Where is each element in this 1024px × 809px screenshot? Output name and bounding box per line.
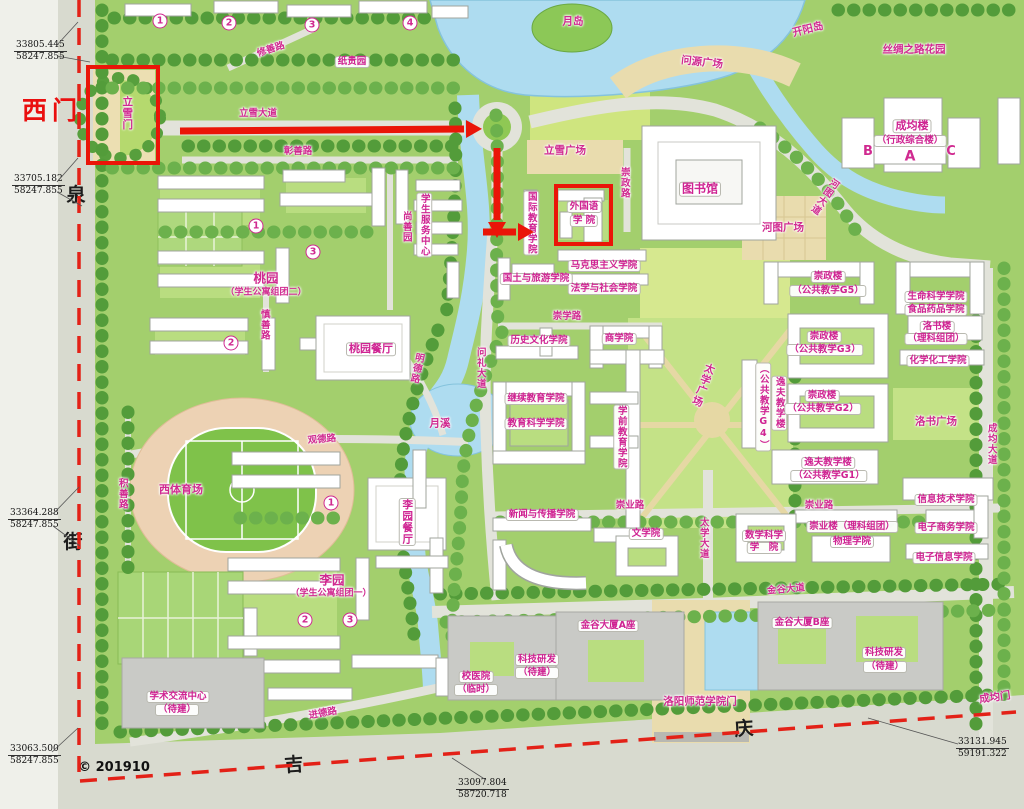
map-label: 学前教育学院 [613, 405, 629, 470]
map-label: 月溪 [430, 418, 451, 429]
map-label: 校医院 [459, 671, 494, 683]
map-label: 成均大道 [986, 423, 996, 465]
map-label: 国土与旅游学院 [500, 273, 573, 285]
map-label: 河图广场 [762, 222, 804, 233]
map-label: 金谷大厦B座 [772, 617, 833, 629]
map-label: 外国语 [567, 201, 602, 213]
map-label: 成均楼 [893, 119, 932, 133]
map-label: 明德路 [408, 352, 424, 385]
map-label: 问源广场 [681, 55, 724, 70]
building-number-badge: 1 [324, 496, 339, 511]
map-label: 尚善园 [401, 211, 411, 243]
map-label: 学 院 [570, 215, 598, 227]
survey-coordinate: 33063.50058247.855 [8, 744, 61, 767]
map-label: 街 [63, 533, 82, 553]
map-label: 西体育场 [159, 484, 203, 496]
map-label: 李园餐厅 [399, 498, 416, 546]
coordinate-y: 58247.855 [8, 756, 61, 767]
map-label: 修善路 [256, 41, 286, 59]
map-label: 学生服务中心 [416, 193, 432, 258]
map-label: 历史文化学院 [507, 335, 570, 347]
map-label: 商学院 [602, 333, 637, 345]
map-label: 太学广场 [690, 362, 716, 409]
lixue-gate-label: 立雪门 [122, 96, 133, 131]
map-label: 学术交流中心 [146, 691, 209, 703]
map-label: 电子信息学院 [912, 552, 975, 564]
map-label: （理科组团） [904, 333, 967, 345]
survey-coordinate: 33131.94559191.322 [956, 737, 1009, 760]
map-label: （待建） [863, 661, 907, 673]
map-label: 数学科学 [742, 530, 786, 542]
building-number-badge: 3 [305, 18, 320, 33]
map-label: 逸夫教学楼 [801, 457, 855, 469]
building-number-badge: 1 [153, 14, 168, 29]
coordinate-x: 33063.500 [8, 744, 61, 756]
coordinate-x: 33097.804 [456, 778, 509, 790]
coordinate-y: 58247.855 [14, 52, 67, 63]
west-gate-label: 西门 [22, 98, 82, 124]
map-label: 生命科学学院 [904, 291, 967, 303]
map-label: 彰善路 [284, 147, 313, 157]
coordinate-x: 33131.945 [956, 737, 1009, 749]
building-number-badge: 1 [249, 219, 264, 234]
coordinate-y: 59191.322 [956, 749, 1009, 760]
map-label: （公共教学G5） [789, 285, 866, 297]
chengjun-gate-label: 成均门 [979, 690, 1012, 705]
map-label: 立雪大道 [239, 109, 277, 119]
map-label: 立雪广场 [544, 145, 586, 156]
map-label: 积善路 [117, 478, 127, 510]
map-label: 电子商务学院 [914, 522, 977, 534]
map-label: （公共教学G1） [790, 470, 867, 482]
coordinate-x: 33805.445 [14, 40, 67, 52]
map-label: 开阳岛 [791, 21, 824, 39]
map-label: 庆 [734, 719, 754, 740]
map-label: 河图大道 [808, 176, 840, 216]
map-label: 月岛 [563, 16, 584, 27]
map-label: 丝绸之路花园 [883, 44, 946, 55]
map-label: 崇业路 [616, 501, 645, 511]
map-label: （待建） [515, 667, 559, 679]
map-label: 科技研发 [862, 647, 906, 659]
coordinate-y: 58720.718 [456, 790, 509, 801]
map-label: 国际教育学院 [523, 191, 539, 256]
building-number-badge: 3 [343, 613, 358, 628]
survey-coordinate: 33805.44558247.855 [14, 40, 67, 63]
map-label: B [863, 145, 873, 159]
map-label: （行政综合楼） [874, 135, 947, 147]
map-label: 马克思主义学院 [568, 260, 641, 272]
main-gate-label: 洛阳师范学院门 [663, 696, 737, 707]
coordinate-x: 33705.182 [12, 174, 65, 186]
map-label: 继续教育学院 [504, 393, 567, 405]
map-label: 文学院 [629, 528, 664, 540]
coordinate-x: 33364.288 [8, 508, 61, 520]
map-label: 桃园餐厅 [346, 342, 396, 356]
copyright: © 201910 [78, 761, 150, 775]
map-label: （学生公寓组团一） [290, 589, 371, 598]
building-number-badge: 4 [403, 16, 418, 31]
map-label: （学生公寓组团二） [225, 288, 306, 297]
map-label: 吉 [284, 755, 304, 776]
map-label: （公共教学G2） [784, 403, 861, 415]
map-label: 观德路 [307, 434, 336, 446]
map-label: 桃园 [253, 271, 278, 284]
map-label: （待建） [155, 704, 199, 716]
map-label: 信息技术学院 [914, 494, 977, 506]
coordinate-y: 58247.855 [12, 186, 65, 197]
map-label: 教育科学学院 [504, 418, 567, 430]
map-label: （公共教学G4） [755, 363, 771, 452]
map-label: 科技研发 [515, 654, 559, 666]
map-label: 化学化工学院 [906, 355, 969, 367]
map-label: 金谷大厦A座 [578, 620, 639, 632]
map-label: 崇政楼 [811, 271, 846, 283]
map-label: 纸贵园 [335, 56, 370, 68]
survey-coordinate: 33097.80458720.718 [456, 778, 509, 801]
building-number-badge: 3 [306, 245, 321, 260]
map-label: 物理学院 [830, 536, 874, 548]
map-label: 崇政楼 [805, 390, 840, 402]
map-label: 太学大道 [698, 517, 708, 559]
library-label: 图书馆 [679, 182, 721, 197]
map-label: 泉 [66, 186, 85, 206]
map-label: 崇学路 [553, 312, 582, 322]
map-label: （临时） [454, 684, 498, 696]
map-label: 新闻与传播学院 [506, 509, 579, 521]
map-label: 进德路 [308, 707, 338, 722]
map-label: A [905, 150, 916, 165]
map-label: （公共教学G3） [786, 344, 863, 356]
building-number-badge: 2 [222, 16, 237, 31]
map-label: 慎善路 [259, 309, 269, 341]
map-label: 洛书楼 [920, 321, 955, 333]
building-number-badge: 2 [298, 613, 313, 628]
map-label: 崇业路 [805, 501, 834, 511]
map-label: 学 院 [747, 542, 782, 554]
map-label: C [946, 145, 956, 159]
label-layer: 修善路纸贵园月岛问源广场开阳岛丝绸之路花园立雪大道彰善路立雪门西门立雪广场崇政路… [0, 0, 1024, 809]
map-label: 洛书广场 [915, 416, 957, 427]
map-label: 崇政楼 [807, 331, 842, 343]
coordinate-y: 58247.855 [8, 520, 61, 531]
map-label: 法学与社会学院 [568, 283, 641, 295]
survey-coordinate: 33705.18258247.855 [12, 174, 65, 197]
campus-map: 修善路纸贵园月岛问源广场开阳岛丝绸之路花园立雪大道彰善路立雪门西门立雪广场崇政路… [0, 0, 1024, 809]
map-label: 李园 [319, 573, 344, 586]
building-number-badge: 2 [224, 336, 239, 351]
map-label: 金谷大道 [767, 583, 806, 596]
survey-coordinate: 33364.28858247.855 [8, 508, 61, 531]
map-label: 问礼大道 [475, 347, 485, 389]
map-label: 食品药品学院 [904, 304, 967, 316]
map-label: 崇政路 [619, 167, 629, 199]
map-label: 崇业楼（理科组团） [806, 521, 898, 533]
